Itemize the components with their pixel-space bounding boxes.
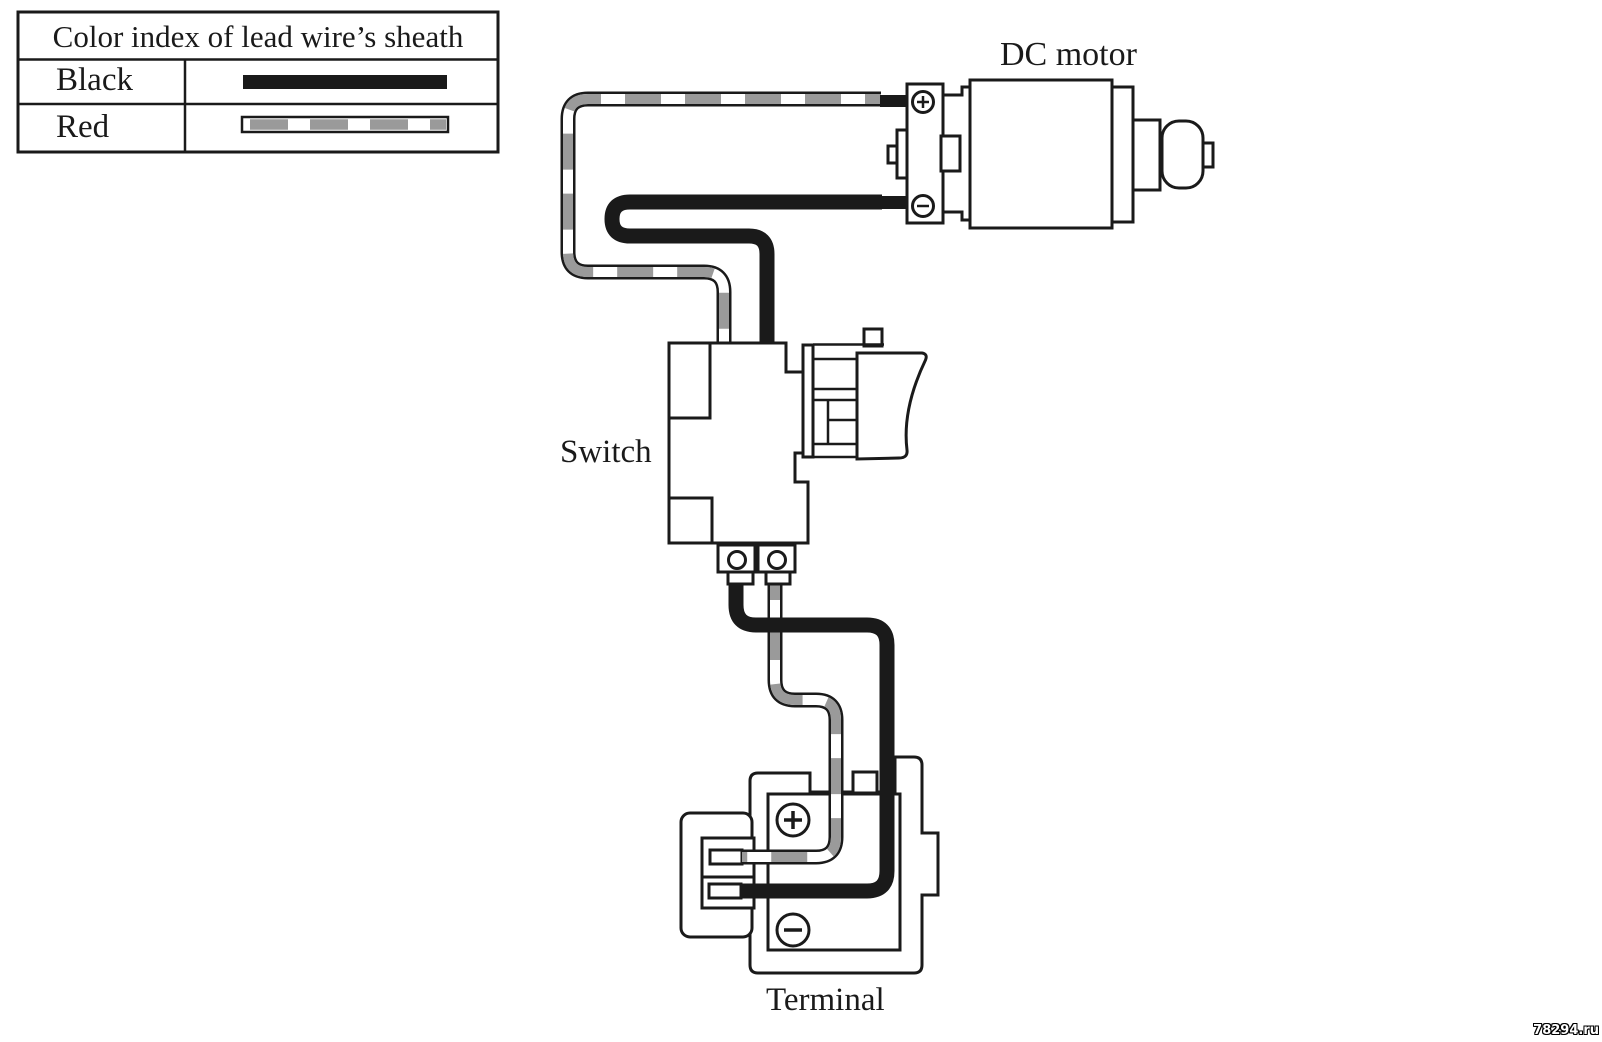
switch-body [669,343,808,543]
black-wire-swatch [243,75,447,89]
motor-bracket-window [941,136,960,171]
motor-bracket-step-bottom [943,212,970,220]
motor-pinion [1162,121,1203,188]
wiring-diagram-page: Color index of lead wire’s sheath Black … [0,0,1602,1042]
legend-row-label-black: Black [56,64,133,97]
motor-bracket-step-top [943,87,970,95]
terminal-label: Terminal [766,984,885,1017]
dc-motor-label: DC motor [1000,38,1137,72]
switch-side-plate [803,345,813,457]
terminal-drawing [681,757,938,973]
legend-row-label-red: Red [56,111,109,144]
red-wire-swatch [242,117,448,132]
switch-right-tab-foot [766,572,790,584]
terminal-upper-contact-slot [710,850,742,864]
switch-right-tab-hole [769,552,786,569]
terminal-lower-contact-slot [709,884,741,898]
motor-gear-housing [1133,120,1160,190]
switch-left-tab-foot [728,572,753,584]
switch-drawing [669,329,926,584]
watermark: 78294.ru [1533,1023,1599,1038]
motor-body [970,80,1112,228]
motor-shaft-tip [1203,143,1213,167]
motor-minus-lead-stub [877,196,909,209]
dc-motor-drawing [877,80,1213,228]
legend-title: Color index of lead wire’s sheath [18,21,498,52]
motor-plus-lead-stub [880,95,909,107]
switch-trigger-face [857,353,926,459]
switch-left-tab-hole [729,552,746,569]
switch-label: Switch [560,436,652,469]
motor-end-cap [1112,87,1133,222]
wiring-diagram-canvas [0,0,1602,1042]
terminal-wire-entry-notch [853,772,877,793]
